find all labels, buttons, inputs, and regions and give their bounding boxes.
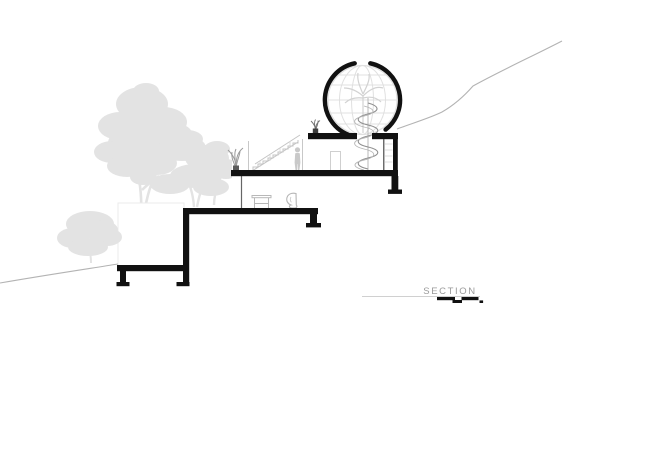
plant-pot <box>313 129 318 134</box>
footing <box>306 223 321 227</box>
wall-step-1 <box>183 209 189 282</box>
section-drawing-svg: SECTION <box>0 0 649 459</box>
footing <box>117 282 130 286</box>
post <box>392 176 399 190</box>
scale-bar <box>437 297 483 303</box>
slab-sphere-deck-right <box>372 133 398 139</box>
architectural-section-drawing: SECTION <box>0 0 649 459</box>
lower-room-outline <box>118 203 184 266</box>
post <box>310 214 317 224</box>
sphere-pod <box>325 63 400 135</box>
terrain-line-right <box>397 41 562 129</box>
post <box>120 271 126 282</box>
section-label: SECTION <box>423 286 476 297</box>
slab-level-2 <box>183 208 318 214</box>
plant-pot <box>233 166 239 171</box>
terrain-line-left <box>0 264 118 283</box>
footing <box>177 282 190 286</box>
bush <box>57 211 122 263</box>
title-block: SECTION <box>362 286 483 303</box>
footing <box>388 190 402 194</box>
slab-sphere-deck-left <box>308 133 357 139</box>
plant-sphere-deck <box>311 120 320 134</box>
slab-lowest <box>117 265 189 271</box>
wall-right-outer <box>393 139 398 171</box>
slab-main-floor <box>231 170 398 176</box>
